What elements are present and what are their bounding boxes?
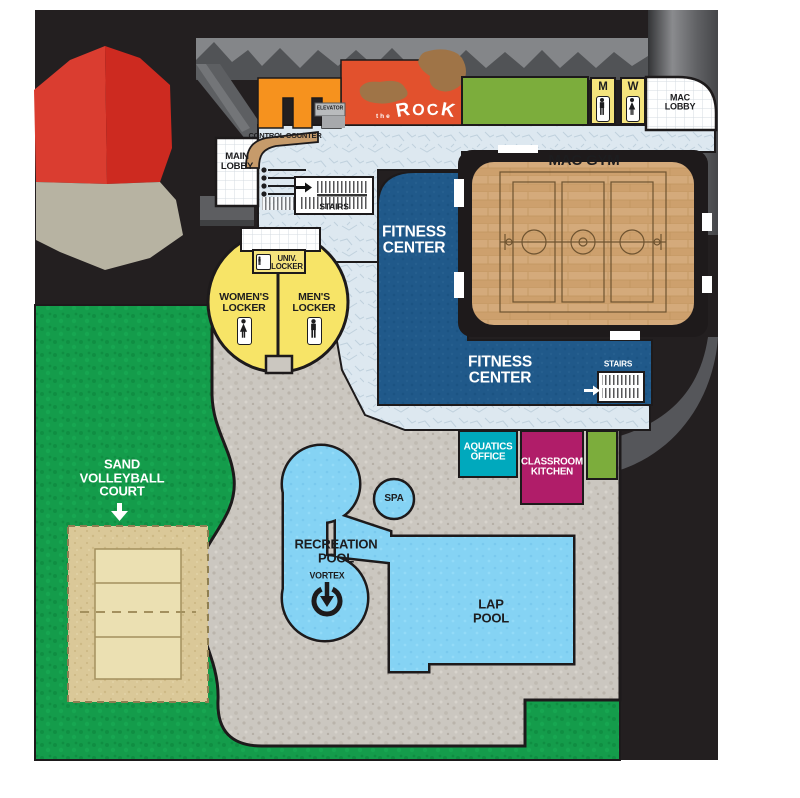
elevator-box (315, 103, 345, 116)
univ-locker-label: UNIV. LOCKER (271, 255, 303, 271)
locker-exit-notch (266, 356, 292, 373)
woman-icon (237, 317, 252, 345)
rock-the-label: the (376, 113, 392, 120)
classroom-kitchen (520, 430, 584, 505)
green-strip (462, 77, 588, 125)
spa-pool (374, 479, 414, 519)
man-icon (307, 317, 322, 345)
locker-vestibule (241, 228, 320, 251)
mac-gym-area (454, 145, 712, 340)
lobby-side-wall-shadow (200, 220, 254, 226)
people-icon (256, 254, 271, 270)
green-room (586, 430, 618, 480)
facility-map: M W UNIV. LOCKER CONTROL COUNTER MAIN LO… (0, 0, 800, 798)
woman-icon (626, 96, 640, 122)
rock-sign-text: the R O C K (372, 100, 464, 128)
restroom-women: W (620, 77, 646, 125)
mac-lobby-area (646, 77, 716, 130)
elevator-landing (322, 116, 345, 128)
restroom-men-label: M (592, 81, 614, 93)
aquatics-office (458, 430, 518, 478)
univ-locker: UNIV. LOCKER (252, 249, 306, 274)
restroom-women-label: W (622, 81, 644, 93)
man-icon (596, 96, 610, 122)
climbing-rock-3d (34, 46, 183, 270)
sand-volleyball-court-area (68, 526, 208, 702)
restroom-men: M (590, 77, 616, 125)
